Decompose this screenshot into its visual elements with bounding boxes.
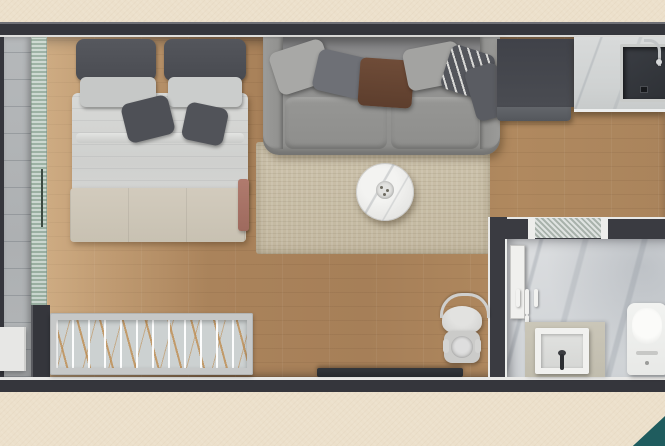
bathroom-floor: [505, 239, 665, 377]
chair-seat-pad: [451, 336, 473, 358]
bathroom-frosted-glass: [535, 218, 601, 238]
glass-jamb-right: [601, 217, 608, 239]
balcony-tile-floor: [4, 37, 31, 377]
coffee-table: [356, 163, 414, 221]
glass-jamb-left: [528, 217, 535, 239]
chair-backrest: [442, 306, 482, 334]
chair-seat: [444, 331, 480, 363]
floor-plan-frame: [0, 22, 665, 392]
chair: [436, 293, 488, 367]
bathroom-faucet: [560, 354, 564, 370]
faucet-base: [656, 59, 662, 65]
teal-corner-graphic: [630, 416, 665, 446]
kitchen-cabinet-lip: [497, 107, 571, 121]
louver-slats: [56, 320, 247, 368]
bed-group: [72, 37, 248, 244]
pillow-dark-right: [164, 39, 246, 81]
glass-door-frame: [41, 169, 43, 227]
unit-interior-wood-floor: [0, 35, 665, 380]
table-vase: [376, 181, 394, 199]
pillow-dark-left: [76, 39, 156, 81]
balcony-bench: [0, 327, 26, 371]
chair-arm-left: [443, 339, 449, 353]
chair-arm-right: [475, 339, 481, 353]
toilet-flush-slot: [636, 351, 658, 355]
kitchen-tall-cabinet: [497, 39, 574, 107]
floor-plan-canvas: [0, 0, 665, 446]
bed-bench: [70, 188, 246, 242]
sink-drain: [640, 86, 648, 93]
accent-throw: [238, 179, 249, 231]
lower-partition-wall: [31, 305, 50, 377]
sofa-group: [263, 37, 500, 155]
toilet-button: [645, 361, 649, 365]
toilet-lid: [632, 308, 662, 344]
bathroom-sink: [535, 328, 589, 374]
sliding-glass-wall: [31, 37, 47, 307]
kitchen-counter: [574, 37, 665, 112]
wall-desk: [317, 368, 463, 377]
pillow-light-right: [168, 77, 242, 107]
toilet: [627, 303, 665, 375]
louver-vent-tray: [50, 313, 253, 375]
